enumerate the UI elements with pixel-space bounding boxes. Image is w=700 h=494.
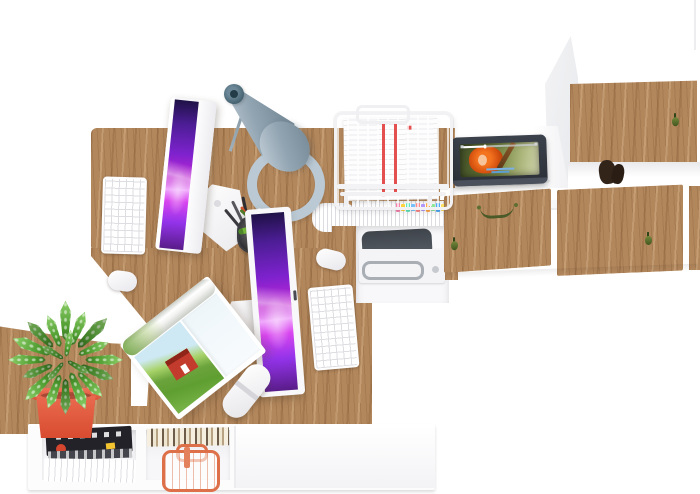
drawer-handle-screw <box>514 203 518 207</box>
cabinet-key-tassel <box>672 113 679 126</box>
video-icon-right[interactable] <box>534 143 537 146</box>
keyboard-left[interactable] <box>101 176 147 254</box>
monitor-left-stand-dot <box>214 200 221 207</box>
plant-leaf <box>58 379 73 415</box>
wire-tray-leg <box>344 196 348 206</box>
office-scene <box>0 0 700 494</box>
printer-knob <box>432 266 439 273</box>
plant-leaf <box>85 352 123 368</box>
plant-foliage <box>8 300 123 410</box>
copper-basket <box>162 450 220 492</box>
cabinet-door-front <box>557 184 683 276</box>
wire-tray-leg <box>428 196 432 206</box>
cabinet-drawer-front <box>444 189 551 273</box>
shelf-door <box>234 426 435 488</box>
drawer-handle <box>480 205 514 219</box>
remote-band <box>235 380 259 401</box>
keyboard-right[interactable] <box>307 284 359 371</box>
wire-tray-rail <box>337 184 449 189</box>
cabinet-edge-line <box>694 0 696 50</box>
lamp-neck-cap <box>224 84 244 104</box>
lamp-neck-hole <box>230 90 238 98</box>
monitor-right-port <box>293 290 297 300</box>
video-progress-knob[interactable] <box>483 144 486 148</box>
tablet-screen <box>459 142 539 178</box>
printer-handle <box>362 261 424 280</box>
tablet <box>451 134 548 186</box>
folded-papers <box>44 458 136 483</box>
plant-leaf <box>8 352 46 368</box>
cabinet-door-sliver <box>689 186 700 270</box>
copper-basket-strap <box>184 447 190 468</box>
video-icon-left[interactable] <box>460 145 463 148</box>
door-key-tassel <box>645 232 652 245</box>
drawer-key-tassel <box>451 237 458 250</box>
tall-cabinet-door <box>570 81 697 166</box>
wire-tray-handle <box>356 105 410 124</box>
video-caption-line2 <box>491 171 509 174</box>
